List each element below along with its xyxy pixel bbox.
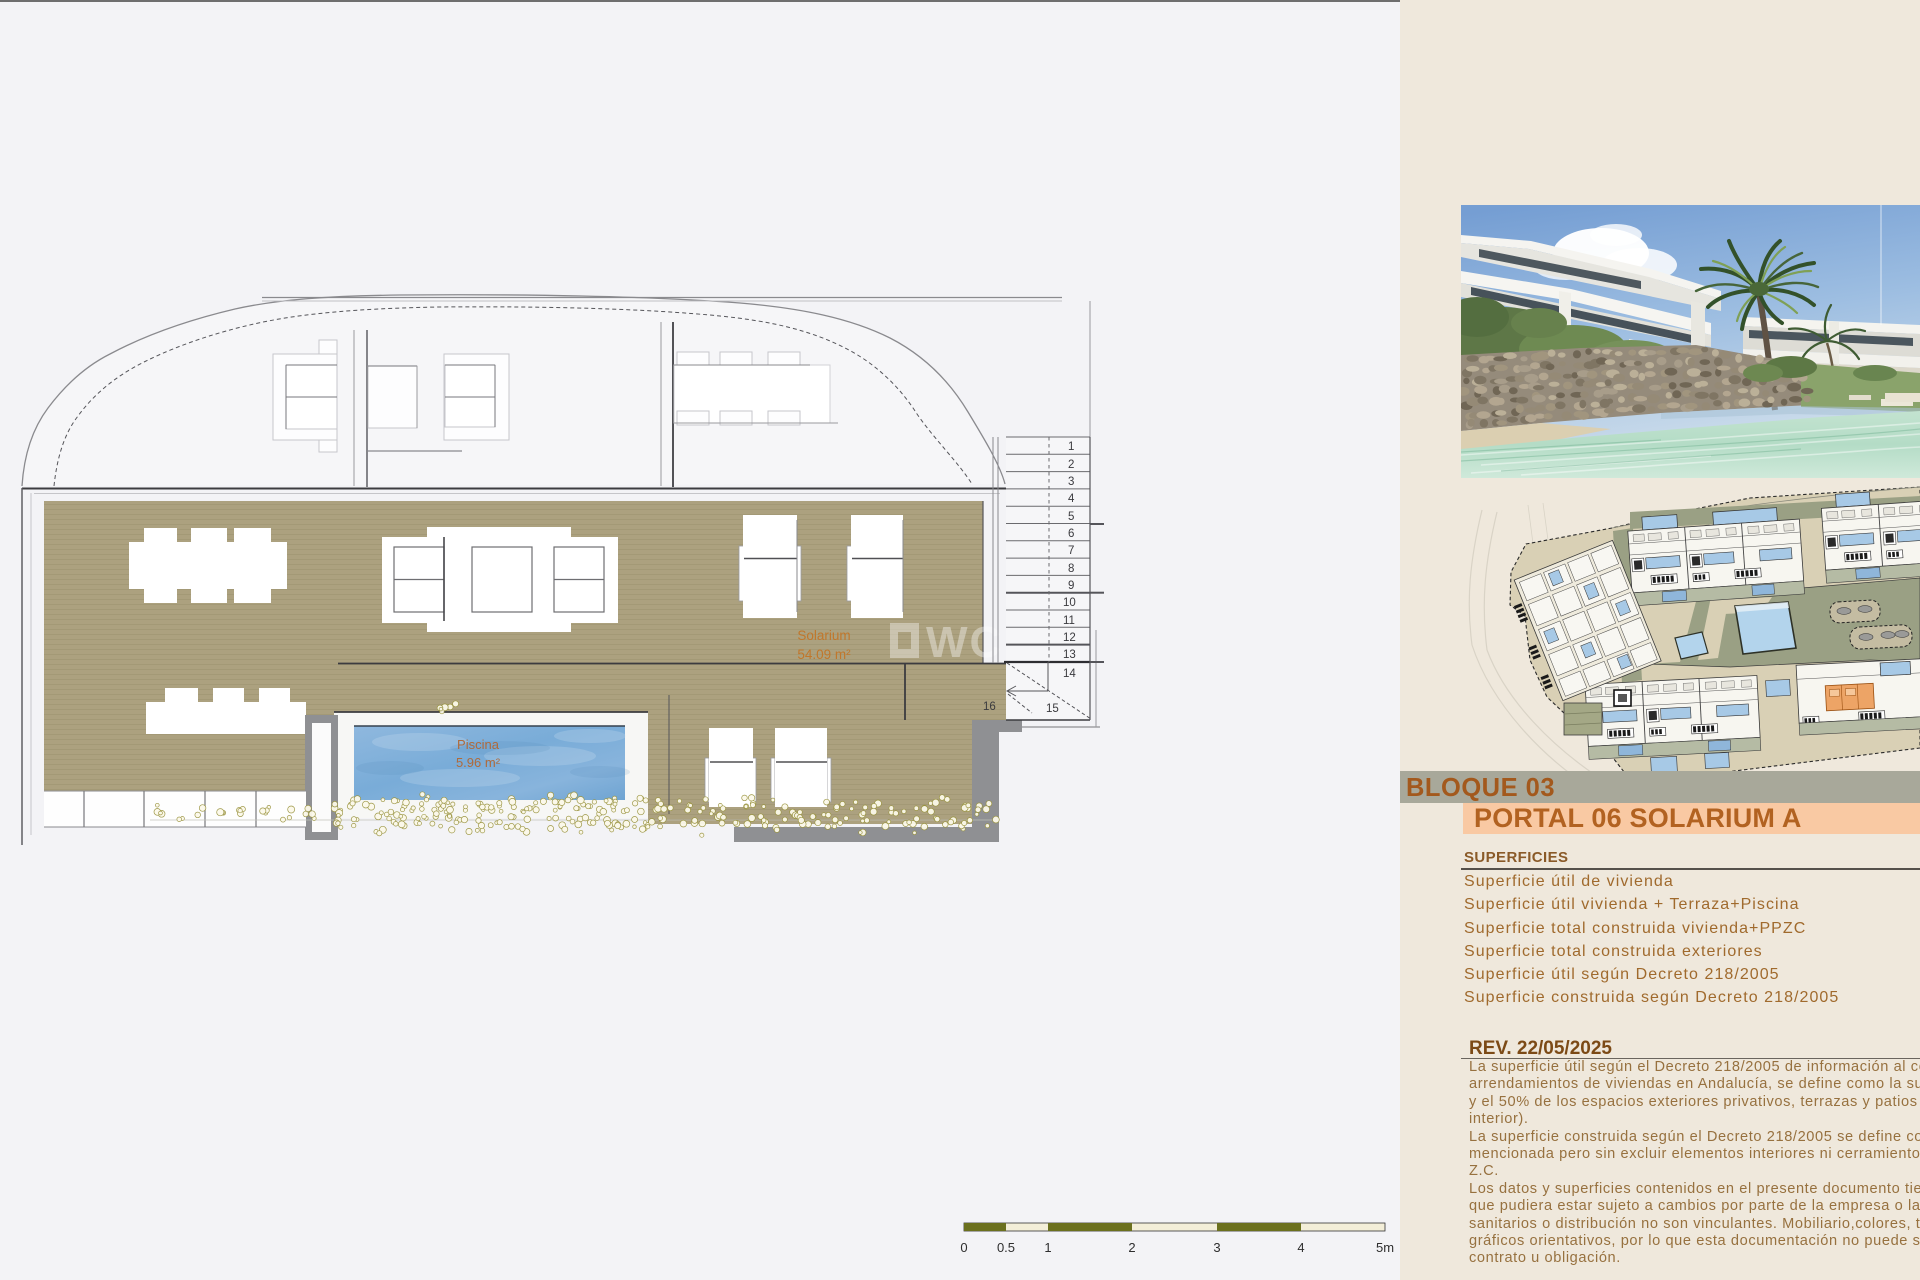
svg-text:14: 14 [1063, 668, 1076, 680]
svg-text:1: 1 [1044, 1240, 1051, 1255]
svg-text:13: 13 [1063, 649, 1076, 661]
svg-text:3: 3 [1068, 476, 1074, 488]
svg-text:12: 12 [1063, 632, 1076, 644]
svg-text:0: 0 [960, 1240, 967, 1255]
svg-text:4: 4 [1068, 493, 1075, 505]
svg-text:15: 15 [1046, 703, 1059, 715]
svg-text:7: 7 [1068, 545, 1074, 557]
svg-text:5.96 m²: 5.96 m² [456, 755, 501, 770]
svg-text:3: 3 [1213, 1240, 1220, 1255]
svg-text:1: 1 [1068, 441, 1074, 453]
svg-text:8: 8 [1068, 563, 1074, 575]
svg-text:9: 9 [1068, 580, 1074, 592]
svg-text:WC: WC [926, 618, 1003, 667]
svg-text:10: 10 [1063, 597, 1076, 609]
svg-text:54.09 m²: 54.09 m² [797, 647, 851, 662]
svg-text:16: 16 [983, 701, 996, 713]
svg-text:2: 2 [1068, 459, 1074, 471]
svg-text:5: 5 [1068, 511, 1074, 523]
svg-text:4: 4 [1297, 1240, 1304, 1255]
svg-text:2: 2 [1128, 1240, 1135, 1255]
svg-text:Solarium: Solarium [797, 628, 850, 643]
svg-text:0.5: 0.5 [997, 1240, 1015, 1255]
svg-text:6: 6 [1068, 528, 1074, 540]
svg-text:Piscina: Piscina [457, 737, 500, 752]
svg-text:11: 11 [1063, 615, 1075, 627]
svg-text:5m: 5m [1376, 1240, 1394, 1255]
